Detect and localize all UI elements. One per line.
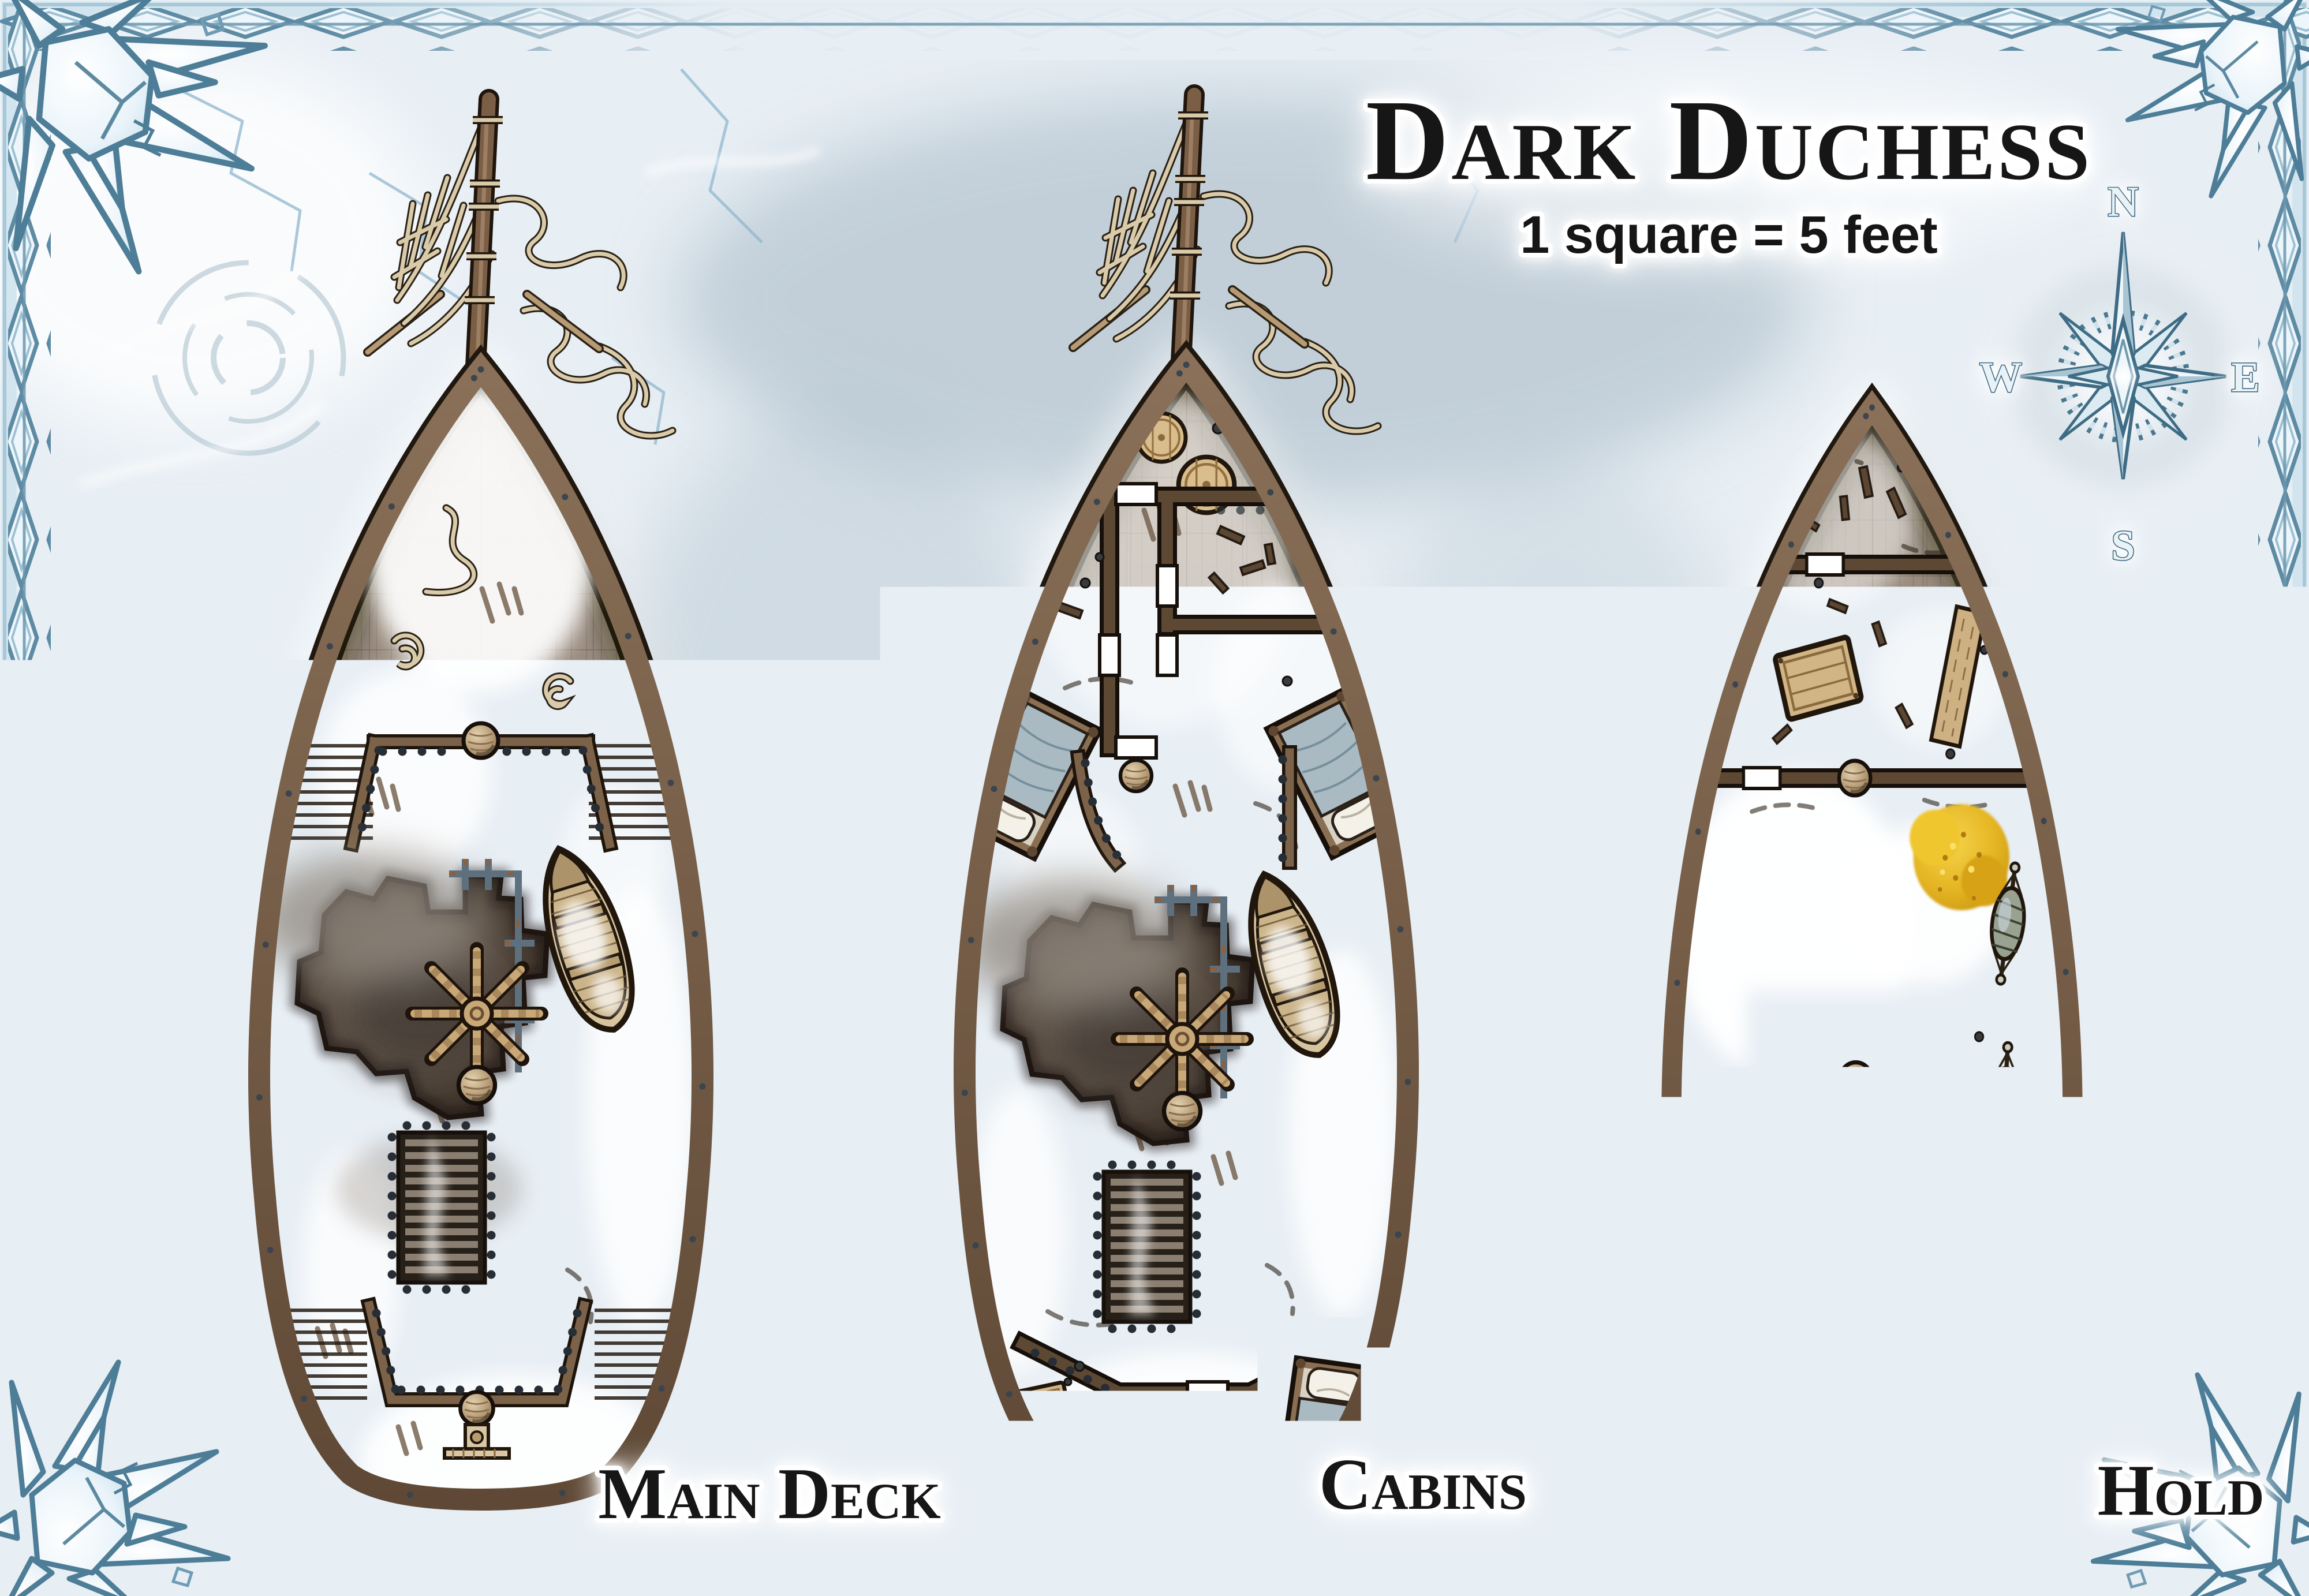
door	[1116, 737, 1156, 758]
map-title: Dark Duchess	[1366, 77, 2092, 204]
deck-label-hold: Hold	[2098, 1451, 2265, 1531]
deck-label-main-deck: Main Deck	[598, 1454, 940, 1534]
door	[1743, 768, 1780, 788]
door	[1157, 635, 1177, 675]
door	[1865, 1347, 1901, 1368]
deck-label-cabins: Cabins	[1319, 1445, 1527, 1525]
compass-east-label: E	[2231, 354, 2259, 401]
companionway-ladder	[1780, 1138, 1868, 1274]
compass-south-label: S	[2111, 522, 2135, 570]
door	[1116, 484, 1156, 504]
compass-west-label: W	[1979, 354, 2022, 401]
map-scale-note: 1 square = 5 feet	[1520, 205, 1938, 264]
compass-north-label: N	[2108, 178, 2138, 226]
door	[1807, 554, 1843, 575]
door	[1100, 635, 1119, 675]
door	[1157, 566, 1177, 606]
battle-map: N E S W Dark Duchess 1 square = 5 feet M…	[0, 0, 2309, 1596]
